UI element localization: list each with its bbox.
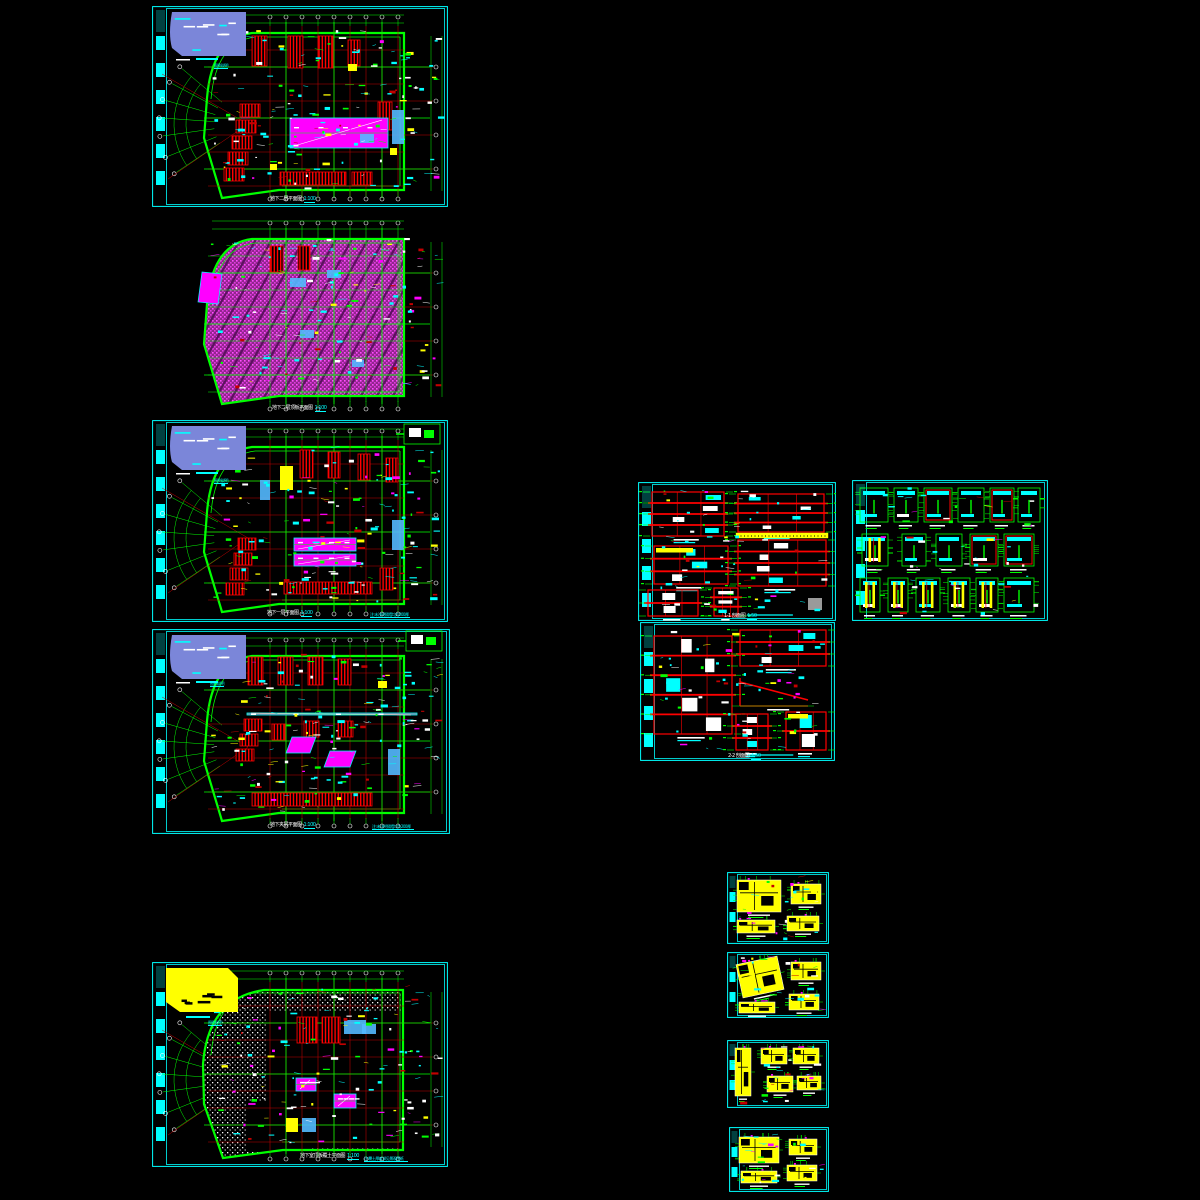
detail-cell: [999, 534, 1039, 573]
magenta-zones: [290, 118, 388, 148]
magenta-zones: [294, 538, 356, 566]
detail-a-drawing: [727, 872, 829, 944]
fixture-detail-cell: [785, 990, 823, 1016]
fixture-detail-cell: [783, 912, 823, 937]
key-plan-mini: [396, 424, 440, 444]
fixture-detail-cell: [733, 916, 779, 939]
section-drawing: [639, 491, 737, 543]
sheet-sections-1: 1-1 剖面图1:50: [638, 482, 836, 621]
sheet-title: 地下二层平面图1:100: [270, 196, 315, 202]
sheet-title: 1-1 剖面图1:50: [724, 613, 757, 619]
sheet-plan-top-slab: 图例说明 地下室顶板覆土平面图1:100 注:覆土厚度详见景观图纸: [152, 962, 448, 1167]
detail-cell: [965, 534, 1003, 573]
sheet-title: 2-2 剖面图1:50: [728, 753, 761, 759]
radial-grid-fan: [157, 688, 248, 802]
fixture-detail-cell: [787, 958, 825, 986]
sheet-title: 地下夹层平面图1:100: [270, 822, 315, 828]
fixture-detail-cell: [785, 1135, 821, 1161]
legend-block-blue: [170, 12, 246, 61]
plan-b1-mez-drawing: [152, 629, 450, 834]
detail-cell: [953, 488, 989, 529]
sheet-detail-c: [727, 1040, 829, 1108]
annotation-clutter: [403, 450, 440, 600]
sheet-title: 地下室顶板覆土平面图1:100: [300, 1153, 359, 1159]
legend-caption: 图例说明: [208, 1020, 222, 1026]
fixture-detail-cell: [783, 1161, 821, 1187]
sections-1-drawing: [638, 482, 836, 621]
section-drawing: [773, 711, 835, 757]
detail-b-drawing: [727, 952, 829, 1018]
fixture-detail-cell: [757, 1044, 791, 1070]
section-drawing: [725, 533, 836, 593]
fixture-detail-cell: [733, 876, 785, 918]
detail-cell: [911, 578, 945, 619]
sheet-detail-b: [727, 952, 829, 1018]
legend-caption: 图例说明: [214, 63, 228, 69]
plan-b2-roof-drawing: [152, 212, 448, 417]
plan-top-slab-drawing: [152, 962, 448, 1167]
detail-cell: [943, 578, 975, 619]
fixture-detail-cell: [731, 952, 789, 1005]
sheet-sections-2: 2-2 剖面图1:50: [640, 622, 835, 761]
legend-block-blue: [170, 635, 246, 684]
cad-workspace: 图例说明 地下二层平面图1:100 地下二层顶板平面图1:100 图例说明 地下…: [0, 0, 1200, 1200]
detail-cell: [1013, 488, 1045, 529]
sheet-plan-b1-mez: 图例说明 地下夹层平面图1:100 注:未注明隔墙均为200厚: [152, 629, 450, 834]
detail-cell: [999, 578, 1039, 619]
detail-cell: [971, 578, 1003, 619]
sheet-plan-b2: 图例说明 地下二层平面图1:100: [152, 6, 448, 207]
section-drawing: [725, 493, 836, 539]
sections-2-drawing: [640, 622, 835, 761]
legend-block-blue: [170, 426, 246, 475]
detail-cell: [985, 488, 1019, 529]
sheet-plan-b2-roof: 地下二层顶板平面图1:100: [152, 212, 448, 417]
stair-cores: [224, 36, 392, 185]
detail-d-drawing: [729, 1127, 829, 1192]
sheet-title: 地下二层顶板平面图1:100: [272, 405, 326, 411]
sheet-detail-d: [729, 1127, 829, 1192]
sheet-note: 注:覆土厚度详见景观图纸: [364, 1156, 408, 1162]
detail-cell: [931, 534, 967, 573]
fixture-detail-cell: [789, 1044, 823, 1070]
annotation-clutter: [404, 993, 443, 1138]
key-plan-mini: [398, 631, 442, 651]
fixture-detail-cell: [793, 1072, 825, 1096]
fixture-detail-cell: [763, 1072, 797, 1098]
fixture-detail-cell: [735, 998, 779, 1018]
stair-details-drawing: [852, 480, 1048, 621]
sheet-stair-details: [852, 480, 1048, 621]
plan-b2-drawing: [152, 6, 448, 207]
sheet-plan-b1: 图例说明 地下一层平面图1:100 注:未注明隔墙均为200厚: [152, 420, 448, 622]
annotation-clutter: [404, 38, 445, 185]
detail-cell: [897, 534, 931, 573]
fixture-detail-cell: [735, 1133, 783, 1169]
legend-caption: 图例说明: [210, 681, 224, 687]
magenta-zones: [198, 272, 222, 304]
floor-plan: [152, 212, 448, 417]
legend-block-yellow: [166, 968, 238, 1018]
sheet-note: 注:未注明隔墙均为200厚: [372, 824, 414, 830]
detail-c-drawing: [727, 1040, 829, 1108]
sheet-detail-a: [727, 872, 829, 944]
detail-cell: [889, 488, 923, 529]
legend-caption: 图例说明: [214, 478, 228, 484]
fixture-detail-cell: [731, 1044, 755, 1102]
sheet-title: 地下一层平面图1:100: [267, 610, 312, 616]
detail-cell: [883, 578, 913, 619]
plan-b1-drawing: [152, 420, 448, 622]
fixture-detail-cell: [737, 1167, 781, 1189]
sheet-note: 注:未注明隔墙均为200厚: [370, 612, 410, 618]
section-drawing: [641, 545, 741, 591]
